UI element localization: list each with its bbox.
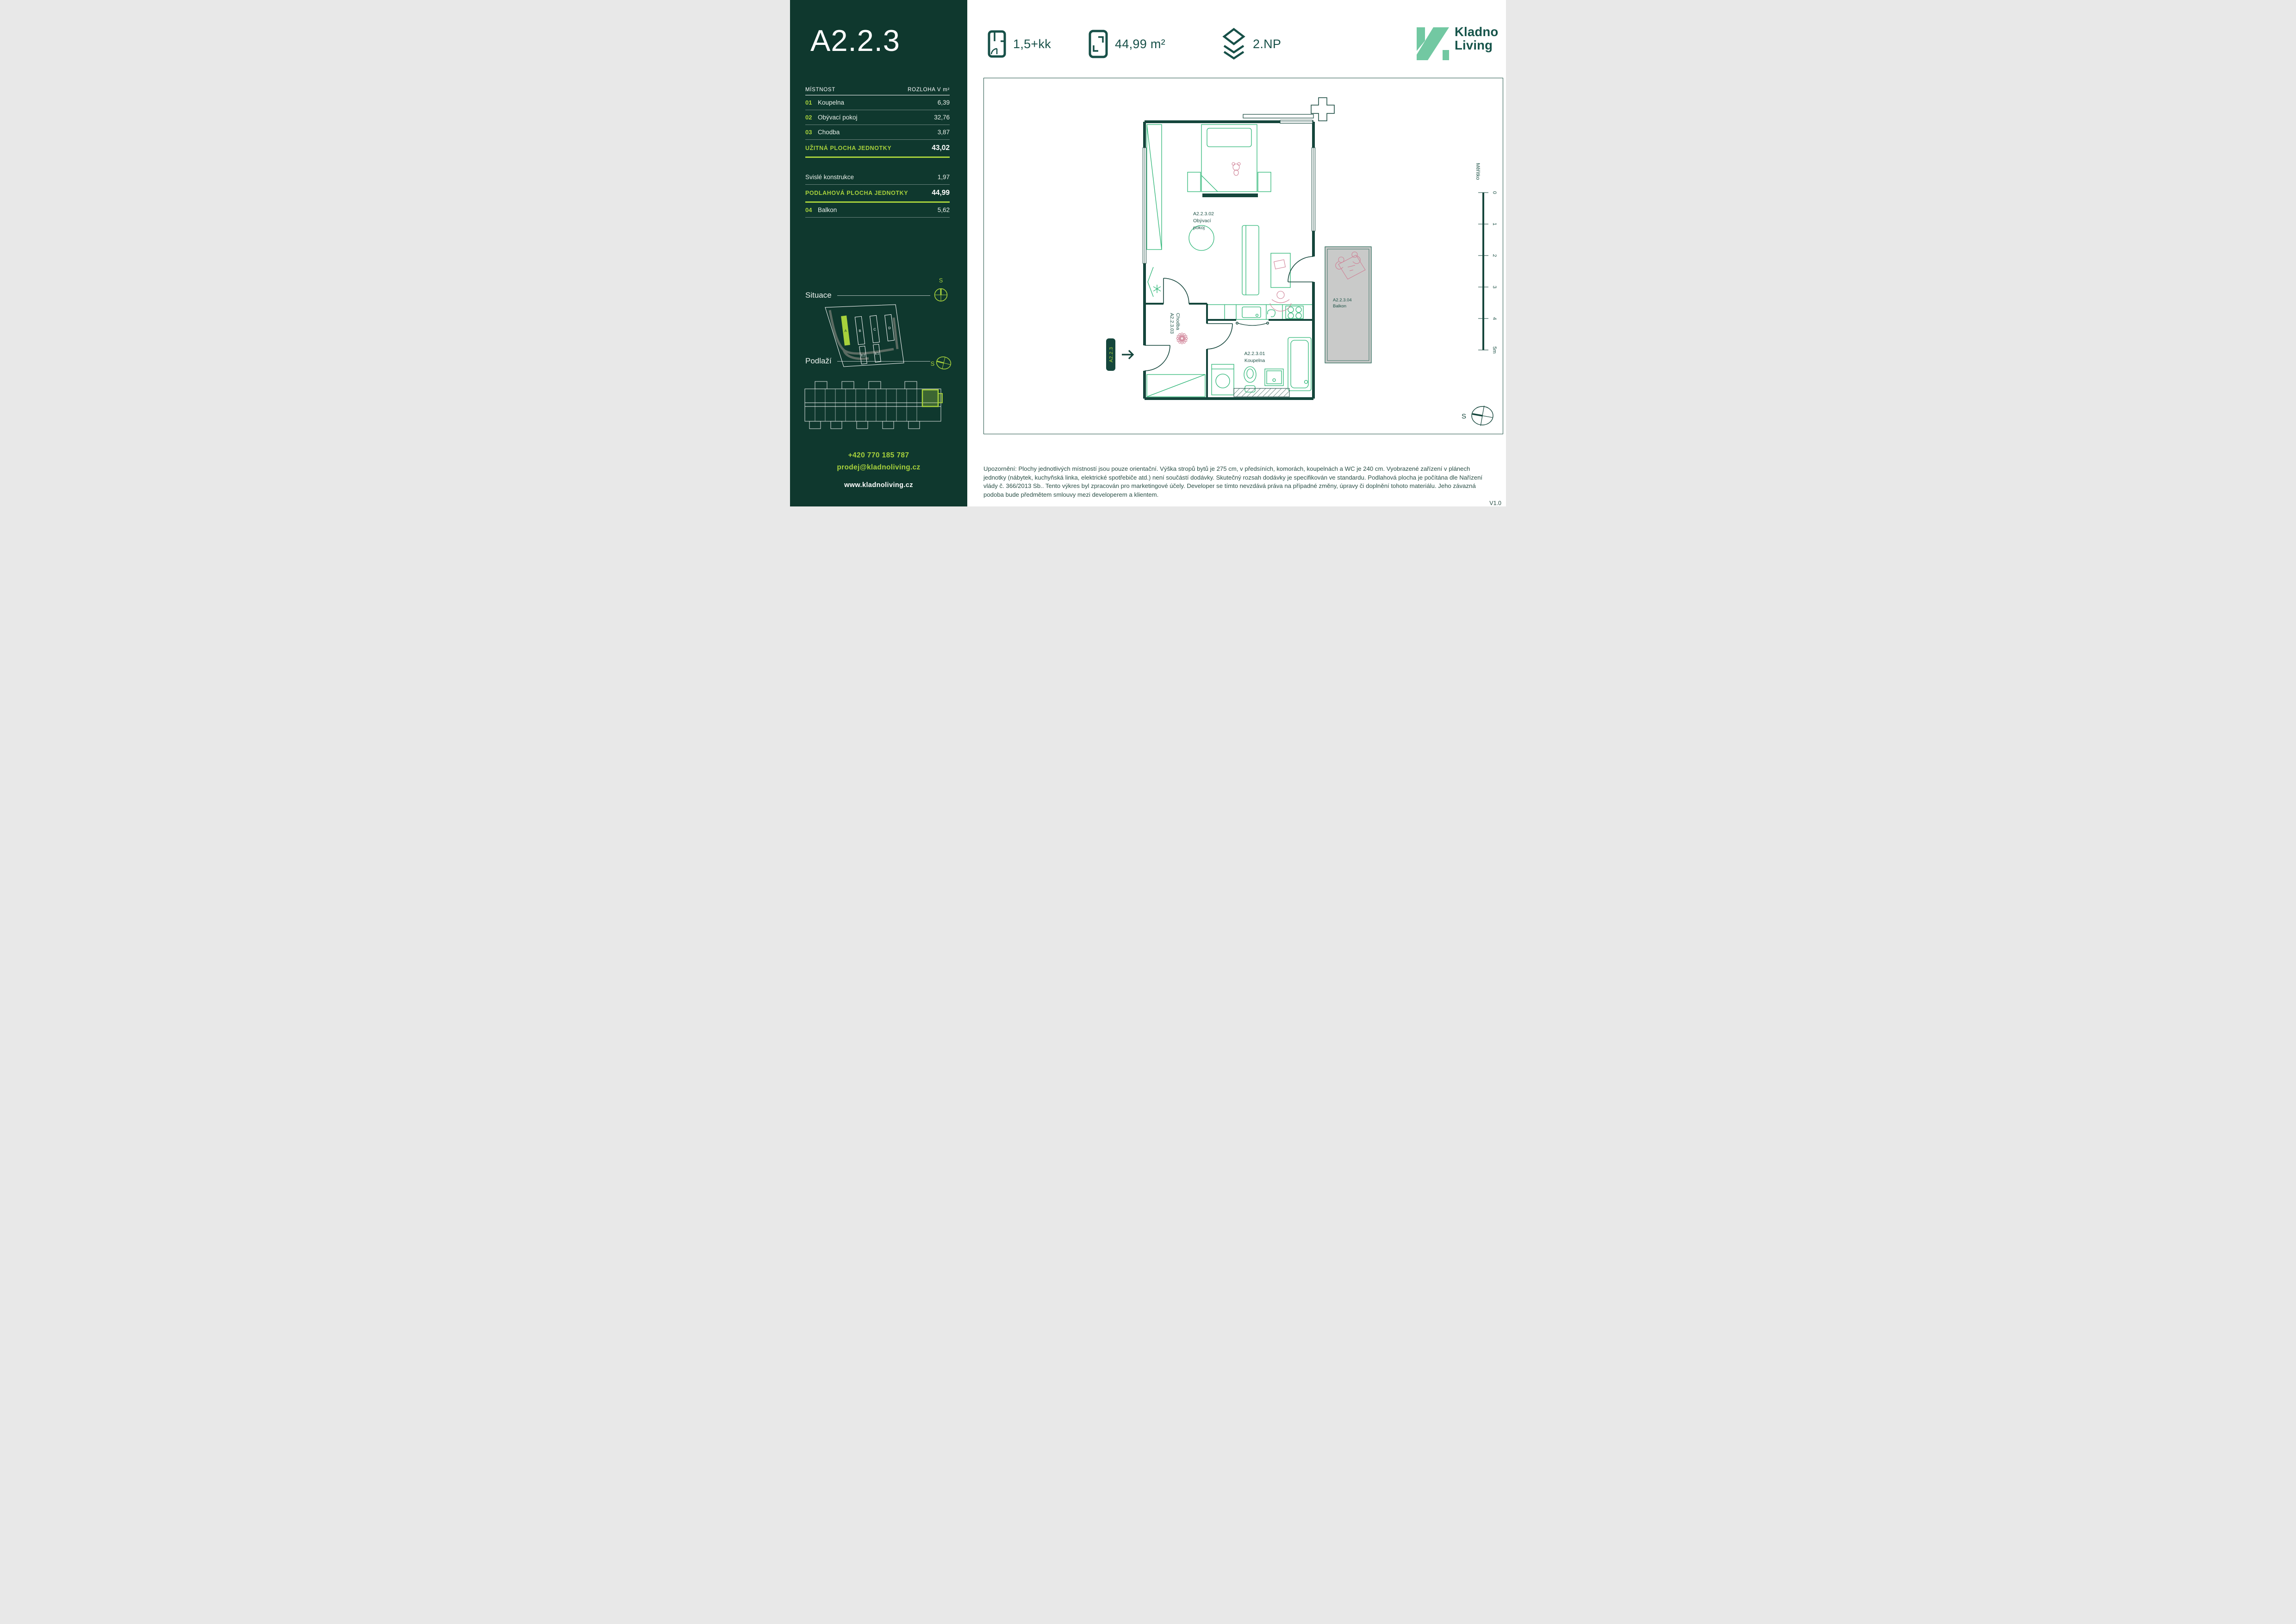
entrance-arrow-icon [1122,350,1133,359]
brand-line2: Living [1455,38,1498,52]
balcony-area: A2.2.3.04 Balkon [1325,247,1371,363]
compass-icon [935,356,952,371]
table-row: 02 Obývací pokoj 32,76 [805,110,950,125]
floor-area-row: PODLAHOVÁ PLOCHA JEDNOTKY 44,99 [805,185,950,203]
living-room-id: A2.2.3.02 [1193,211,1214,217]
building-b-label: B [859,329,861,333]
podlazi-compass: S [928,353,953,374]
floorplan-drawing: A2.2.3.04 Balkon [984,78,1502,433]
building-d-label: D [888,326,891,331]
room-name: Koupelna [818,99,844,106]
area-value: 44,99 m² [1115,37,1165,51]
situace-heading: Situace [805,291,930,300]
brand-line1: Kladno [1455,25,1498,38]
podlazi-label: Podlaží [805,356,832,366]
version-label: V1.0 [1489,500,1501,506]
podlazi-heading: Podlaží [805,356,930,366]
contact-phone[interactable]: +420 770 185 787 [790,451,967,460]
hall-name: Chodba [1175,313,1181,330]
sidebar: A2.2.3 MÍSTNOST ROZLOHA V m² 01 Koupelna… [790,0,967,506]
living-room-name1: Obývací [1193,218,1211,224]
situace-compass: S [934,276,948,303]
floor-layers-icon [1222,27,1246,61]
building-e1-label: E1 [875,351,879,356]
unit-title: A2.2.3 [810,23,900,58]
hatched-area [1234,388,1289,397]
col-area: ROZLOHA V m² [908,87,950,93]
room-area: 32,76 [934,114,950,121]
room-area: 5,62 [938,206,950,213]
room-number: 01 [805,99,818,106]
column [1311,98,1334,121]
floorplan-sheet: A2.2.3 MÍSTNOST ROZLOHA V m² 01 Koupelna… [790,0,1506,506]
highlighted-unit [922,390,942,406]
bathroom-name: Koupelna [1244,358,1265,363]
floorplan-icon [988,30,1006,58]
floor-value: 2.NP [1253,37,1281,51]
balcony-name: Balkon [1333,304,1346,309]
room-table-header: MÍSTNOST ROZLOHA V m² [805,81,950,95]
plan-container: A2.2.3.04 Balkon [983,78,1503,434]
vertical-structures-row: Svislé konstrukce 1,97 [805,170,950,185]
entrance-marker: A2.2.3 [1106,338,1133,371]
divider [837,361,930,362]
room-name: Chodba [818,129,840,136]
floor-area-label: PODLAHOVÁ PLOCHA JEDNOTKY [805,190,908,196]
brand-name: Kladno Living [1455,25,1498,60]
north-letter: S [939,277,943,284]
usable-area-label: UŽITNÁ PLOCHA JEDNOTKY [805,145,891,151]
scale-bar: Měřítko 0 1 2 3 4 5m [1475,163,1497,354]
disposition-value: 1,5+kk [1013,37,1051,51]
north-letter: S [931,360,935,367]
contact-email[interactable]: prodej@kladnoliving.cz [790,463,967,472]
divider [837,295,930,296]
room-name: Obývací pokoj [818,114,858,121]
bench [1202,194,1258,197]
room-area: 3,87 [938,129,950,136]
scale-tick: 1 [1492,223,1497,225]
vertical-structures-label: Svislé konstrukce [805,174,854,181]
scale-tick: 4 [1492,317,1497,320]
balcony-id: A2.2.3.04 [1333,298,1352,303]
building-c-label: C [873,327,877,332]
hall-id: A2.2.3.03 [1169,313,1175,334]
room-table: MÍSTNOST ROZLOHA V m² 01 Koupelna 6,39 0… [805,81,950,218]
brand-logo: Kladno Living [1416,25,1498,60]
scale-tick: 0 [1492,191,1497,194]
kladno-living-mark-icon [1416,25,1450,60]
floor-area-value: 44,99 [932,189,950,197]
north-letter: S [1462,412,1466,420]
building-outline [805,381,941,429]
vertical-structures-value: 1,97 [938,174,950,181]
scale-title: Měřítko [1475,163,1481,180]
usable-area-row: UŽITNÁ PLOCHA JEDNOTKY 43,02 [805,140,950,158]
usable-area-value: 43,02 [932,144,950,152]
room-number: 04 [805,206,818,213]
area-item: 44,99 m² [1089,28,1165,60]
room-number: 02 [805,114,818,121]
floor-overview [801,376,956,434]
floor-item: 2.NP [1222,28,1281,60]
scale-tick: 3 [1492,286,1497,288]
entrance-unit-label: A2.2.3 [1108,347,1114,362]
scale-tick: 5m [1492,346,1497,353]
disposition-item: 1,5+kk [988,28,1051,60]
scale-tick: 2 [1492,254,1497,257]
area-icon [1089,30,1108,58]
room-number: 03 [805,129,818,136]
living-room-name2: pokoj [1193,225,1205,231]
contact-website[interactable]: www.kladnoliving.cz [790,481,967,489]
plan-compass: S [1462,404,1494,428]
disclaimer-text: Upozornění: Plochy jednotlivých místnost… [983,465,1486,499]
balcony-row: 04 Balkon 5,62 [805,203,950,218]
table-row: 01 Koupelna 6,39 [805,95,950,110]
situace-label: Situace [805,291,832,300]
bathroom-id: A2.2.3.01 [1244,351,1265,356]
room-name: Balkon [818,206,837,213]
col-room: MÍSTNOST [805,87,835,93]
room-area: 6,39 [938,99,950,106]
table-row: 03 Chodba 3,87 [805,125,950,140]
